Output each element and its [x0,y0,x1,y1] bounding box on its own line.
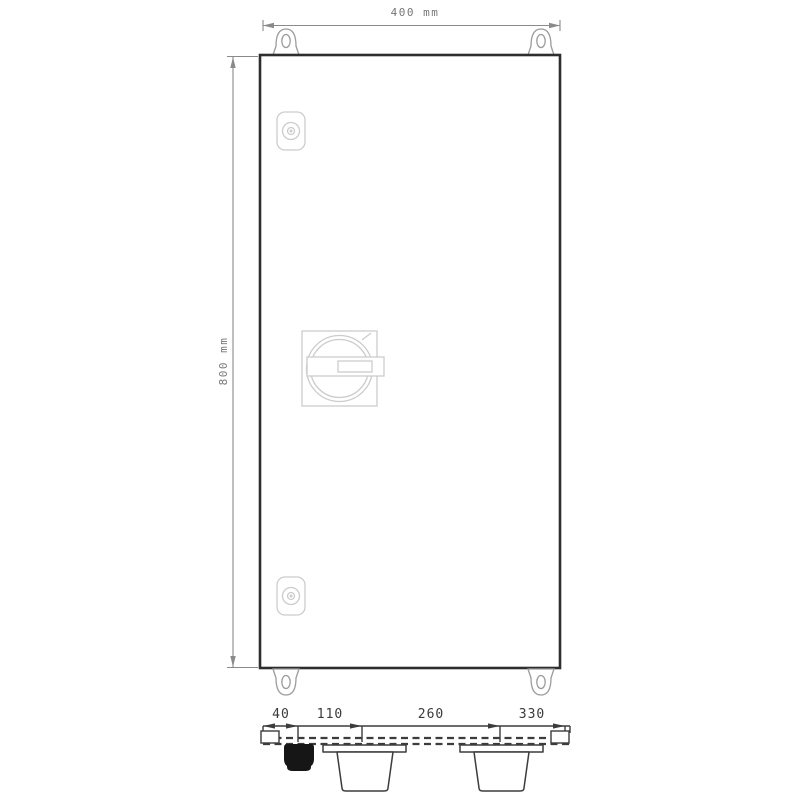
mounting-lug-top-right [528,29,554,55]
panel-end-step-right [551,731,569,743]
bottom-dim-label-40: 40 [272,707,290,722]
bottom-dim-label-260: 260 [418,707,444,722]
mounting-lug-bottom-right [528,669,554,695]
bottom-dimension-chain [263,723,570,743]
width-dimension-label: 400 mm [391,6,440,19]
bottom-panel-section [263,738,570,744]
technical-drawing-canvas: 400 mm 800 mm [0,0,800,800]
enclosure-body [260,55,560,668]
panel-end-step-left [261,731,279,743]
enclosure-drawing: 400 mm 800 mm [0,0,800,800]
mounting-lug-top-left [273,29,299,55]
width-dimension [263,20,560,31]
mounting-lug-bottom-left [273,669,299,695]
cable-gland [284,744,314,771]
bottom-dim-label-330: 330 [519,707,545,722]
height-dimension-label: 800 mm [217,337,230,386]
flange-socket-1 [323,745,406,791]
flange-socket-2 [460,745,543,791]
height-dimension [227,57,258,668]
bottom-dim-label-110: 110 [317,707,343,722]
